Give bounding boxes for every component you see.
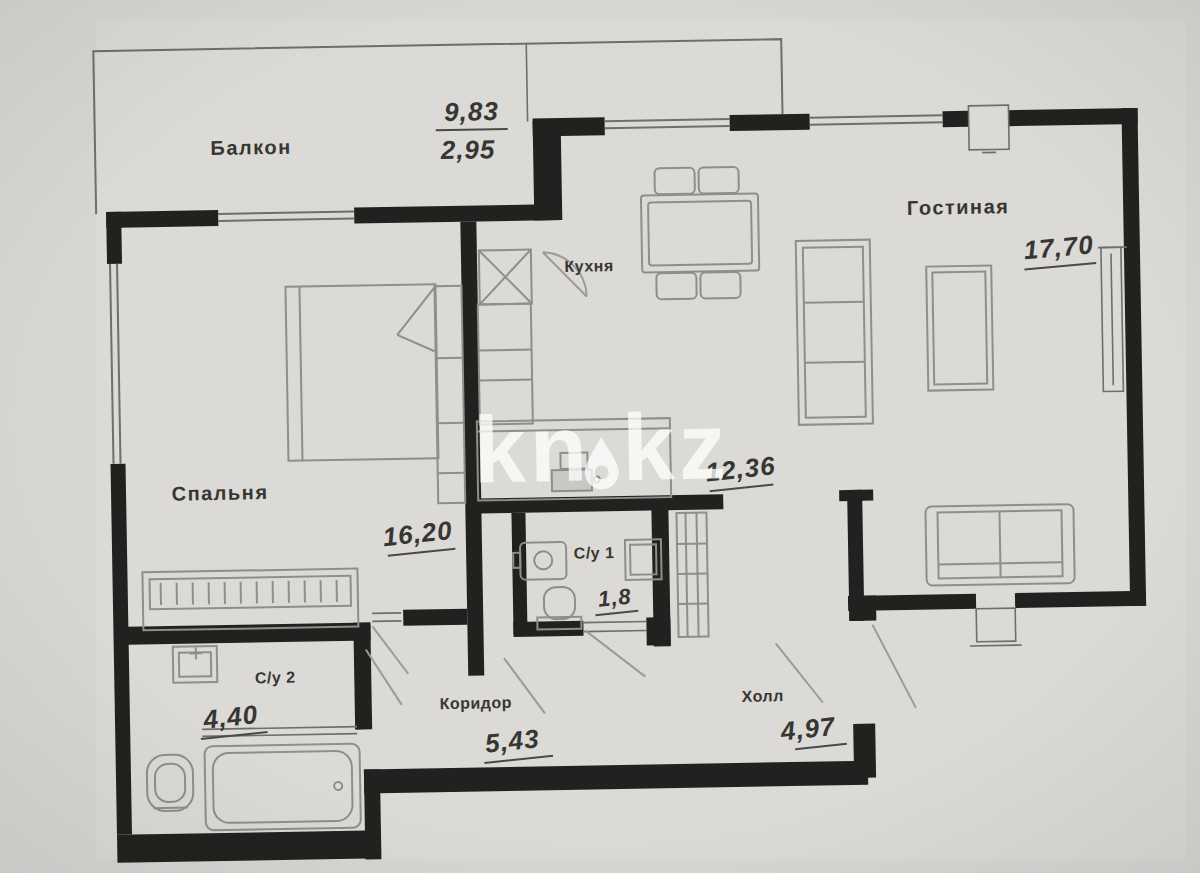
scan-vignette [0, 0, 1200, 873]
scanned-floor-plan: Балкон 9,83 2,95 Кухня 12,36 Гостиная 17… [0, 0, 1200, 873]
floor-plan-image: Балкон 9,83 2,95 Кухня 12,36 Гостиная 17… [0, 0, 1200, 873]
